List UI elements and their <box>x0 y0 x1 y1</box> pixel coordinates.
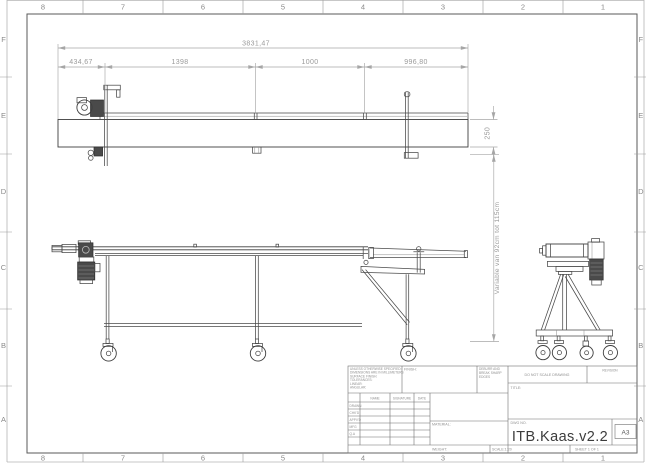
head-roller <box>546 244 588 257</box>
drawing-number: ITB.Kaas.v2.2 <box>512 429 608 445</box>
title-label: TITLE: <box>511 386 522 390</box>
grid-col-label: 2 <box>521 3 525 12</box>
paper-size-label: A3 <box>622 429 630 436</box>
grid-row-label: E <box>638 111 643 120</box>
discharge-boom <box>361 247 468 274</box>
view-conveyor-elevation <box>58 85 468 166</box>
grid-col-label: 4 <box>361 3 365 12</box>
dim-height-note: Variable van 92cm tot 115cm <box>494 202 501 295</box>
caster-wheel <box>580 336 593 359</box>
dim-overall-length: 3831,47 <box>242 40 270 47</box>
dwg-no-label: DWG NO. <box>511 421 527 425</box>
diagonal-brace <box>362 270 410 325</box>
finish-label: FINISH: <box>404 368 417 372</box>
grid-col-label: 7 <box>121 454 125 463</box>
grid-col-label: 6 <box>201 3 205 12</box>
signoff-row-label: APPV'D <box>350 418 362 422</box>
grid-col-label: 5 <box>281 454 285 463</box>
grid-col-label: 2 <box>521 454 525 463</box>
view-conveyor-on-legs <box>52 241 468 361</box>
a-frame-legs <box>541 274 600 330</box>
signoff-col-header: NAME <box>370 397 379 401</box>
base-rail <box>536 330 612 336</box>
sheet-frame <box>0 0 646 462</box>
signoff-row-label: MFG <box>350 425 358 429</box>
dimension-variable-height: Variable van 92cm tot 115cm <box>470 155 501 342</box>
grid-col-label: 8 <box>41 454 45 463</box>
dim-segment-4: 996,80 <box>404 59 428 66</box>
caster-wheel <box>552 336 566 360</box>
signoff-row-label: Q.A <box>350 432 356 436</box>
sheet-label: SHEET 1 OF 1 <box>575 447 599 451</box>
caster-wheel <box>250 339 265 361</box>
revision-label: REVISION <box>602 369 618 373</box>
view-end-elevation <box>536 239 618 360</box>
end-view-motor <box>588 239 604 285</box>
grid-col-label: 3 <box>441 3 445 12</box>
right-post <box>406 93 409 159</box>
grid-col-label: 6 <box>201 454 205 463</box>
dim-belt-height: 250 <box>484 127 491 140</box>
deburr-note-line: EDGES <box>479 375 490 379</box>
grid-reference-right: F E D C B A <box>638 35 644 424</box>
grid-row-label: A <box>638 415 643 424</box>
caster-wheel <box>101 339 116 361</box>
leg-right <box>406 274 409 339</box>
grid-row-label: D <box>1 187 7 196</box>
grid-row-label: A <box>1 415 6 424</box>
material-label: MATERIAL: <box>432 423 451 427</box>
grid-col-label: 5 <box>281 3 285 12</box>
drawing-border <box>27 14 637 453</box>
signoff-row-label: CHK'D <box>350 411 360 415</box>
grid-row-label: B <box>1 341 6 350</box>
do-not-scale-note: DO NOT SCALE DRAWING <box>525 373 570 377</box>
drive-motor <box>77 98 104 161</box>
dim-segment-1: 434,67 <box>69 59 93 66</box>
lower-rail <box>104 323 362 326</box>
grid-row-label: C <box>638 263 644 272</box>
signoff-col-header: DATE <box>418 397 426 401</box>
grid-row-label: B <box>638 341 643 350</box>
grid-col-label: 4 <box>361 454 365 463</box>
grid-col-label: 7 <box>121 3 125 12</box>
dim-segment-3: 1000 <box>302 59 319 66</box>
grid-row-label: D <box>638 187 644 196</box>
weight-label: WEIGHT: <box>432 447 447 451</box>
drawing-sheet: 8 7 6 5 4 3 2 1 8 7 6 5 4 3 2 1 F E D C … <box>0 0 646 463</box>
conveyor-beam <box>58 120 468 148</box>
grid-row-label: C <box>1 263 7 272</box>
grid-col-label: 8 <box>41 3 45 12</box>
tolerance-note: UNLESS OTHERWISE SPECIFIED: DIMENSIONS A… <box>350 367 404 390</box>
title-block: UNLESS OTHERWISE SPECIFIED: DIMENSIONS A… <box>348 366 637 453</box>
deburr-note: DEBURR AND BREAK SHARP EDGES <box>479 367 502 379</box>
grid-reference-left: F E D C B A <box>1 35 7 424</box>
signoff-row-label: DRAWN <box>350 404 363 408</box>
cad-drawing-canvas: 8 7 6 5 4 3 2 1 8 7 6 5 4 3 2 1 F E D C … <box>0 0 646 463</box>
caster-wheel <box>603 336 617 360</box>
grid-col-label: 1 <box>601 454 605 463</box>
grid-row-label: E <box>1 111 6 120</box>
grid-col-label: 3 <box>441 454 445 463</box>
tolerance-note-line: ANGULAR: <box>350 386 366 390</box>
grid-row-label: F <box>639 35 644 44</box>
scale-label: SCALE:1:20 <box>492 447 512 451</box>
grid-col-label: 1 <box>601 3 605 12</box>
grid-row-label: F <box>1 35 6 44</box>
dim-segment-2: 1398 <box>172 59 189 66</box>
center-column <box>563 274 567 330</box>
dimensions-top-view: 3831,47 434,67 1398 1000 996,80 250 <box>58 40 498 160</box>
caster-wheel <box>536 336 550 360</box>
signoff-col-header: SIGNATURE <box>393 397 411 401</box>
caster-wheel <box>401 339 416 361</box>
